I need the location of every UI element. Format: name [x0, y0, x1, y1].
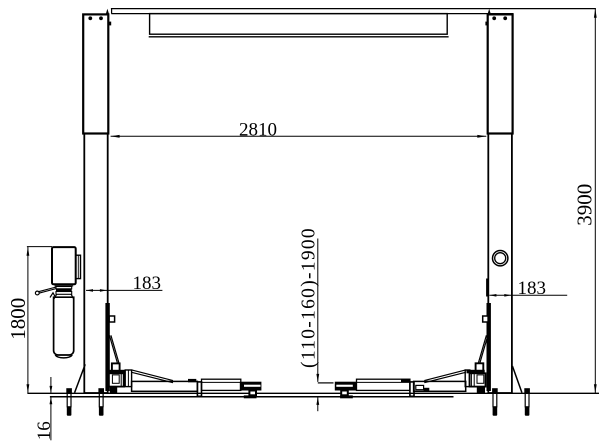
svg-text:2810: 2810	[239, 119, 277, 140]
svg-text:(110-160)-1900: (110-160)-1900	[299, 227, 320, 368]
svg-text:3900: 3900	[573, 184, 597, 226]
svg-text:183: 183	[133, 273, 162, 294]
svg-text:16: 16	[34, 421, 55, 440]
svg-text:1800: 1800	[6, 298, 30, 340]
svg-text:183: 183	[517, 278, 546, 299]
